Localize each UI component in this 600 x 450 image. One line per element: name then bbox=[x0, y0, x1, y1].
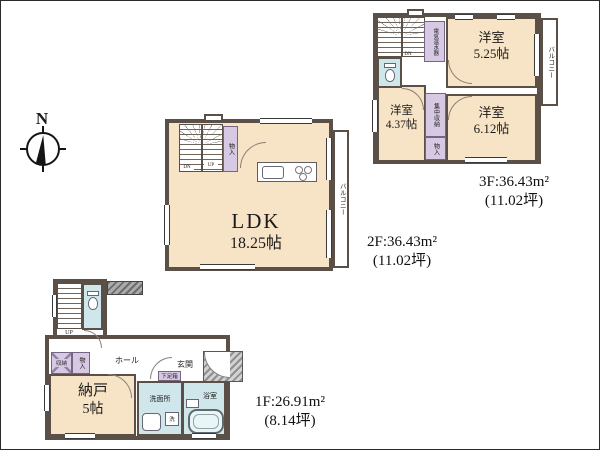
toilet-bowl-icon bbox=[88, 297, 98, 310]
compass-tick-w bbox=[20, 148, 28, 150]
floor2-stairs-divider bbox=[201, 125, 203, 171]
floor2-area-label: 2F:36.43m² (11.02坪) bbox=[346, 233, 458, 271]
window bbox=[192, 433, 216, 439]
floor3-water-heater: 電気温水器 bbox=[424, 21, 445, 62]
washer-space: 洗 bbox=[165, 412, 179, 426]
compass-tick-e bbox=[58, 148, 66, 150]
floor2-stairs-dn-label: DN bbox=[180, 165, 194, 171]
floor2-ldk-label: LDK 18.25帖 bbox=[196, 208, 316, 254]
floor3-closet: 物入 bbox=[425, 137, 446, 160]
floor3-mid-closet: 集中収納 bbox=[425, 93, 446, 137]
window bbox=[326, 210, 332, 258]
window bbox=[372, 100, 378, 132]
window bbox=[534, 34, 540, 76]
floor3-toilet-room bbox=[377, 57, 402, 88]
floor-plan-image: N バルコニー DN 電気温水器 集中収納 物入 洋室 5.25帖 洋室 4.3… bbox=[0, 0, 600, 450]
floor1-toilet-room bbox=[82, 283, 103, 330]
floor1-closet-b: 物入 bbox=[72, 352, 90, 374]
window bbox=[200, 264, 255, 270]
floor1-closet-a: 収納 bbox=[51, 352, 72, 374]
floor3-stairs bbox=[377, 17, 425, 57]
floor1-hall-label: ホール bbox=[110, 356, 144, 366]
bath-vanity-icon bbox=[186, 399, 199, 408]
floor1-closet-a-label: 収納 bbox=[56, 359, 67, 367]
floor2-stairs-up-label: UP bbox=[204, 163, 218, 169]
compass-tick-s bbox=[42, 164, 44, 172]
window bbox=[497, 14, 515, 20]
window bbox=[164, 205, 170, 245]
window bbox=[326, 138, 332, 180]
floor1-washroom: 洗面所 洗 bbox=[137, 381, 183, 436]
toilet-tank-icon bbox=[87, 291, 99, 296]
washbasin-icon bbox=[142, 413, 161, 431]
floor2-wall-protrusion bbox=[204, 114, 223, 122]
floor1-overhang-hatch bbox=[107, 281, 143, 295]
floor3-area-label: 3F:36.43m² (11.02坪) bbox=[458, 173, 570, 211]
floor1-area-label: 1F:26.91m² (8.14坪) bbox=[234, 393, 346, 431]
window bbox=[44, 385, 50, 411]
floor1-bathroom: 浴室 bbox=[182, 381, 226, 436]
floor3-room-525-label: 洋室 5.25帖 bbox=[446, 30, 537, 63]
compass-tick-n bbox=[42, 126, 44, 134]
toilet-bowl-icon bbox=[385, 69, 395, 82]
floor2-closet-label: 物入 bbox=[224, 127, 237, 171]
window bbox=[260, 118, 312, 124]
window bbox=[465, 157, 507, 163]
floor1-stairs bbox=[57, 283, 82, 329]
floor3-wall-protrusion bbox=[407, 9, 424, 17]
toilet-tank-icon bbox=[384, 63, 396, 68]
bathtub-icon bbox=[188, 409, 224, 434]
floor2-closet: 物入 bbox=[223, 126, 238, 172]
kitchen-counter bbox=[257, 162, 317, 182]
floor3-balcony: バルコニー bbox=[541, 18, 558, 106]
floor1-stairs-label: UP bbox=[60, 330, 78, 338]
floor3-balcony-label: バルコニー bbox=[543, 20, 556, 104]
floor1-washroom-label: 洗面所 bbox=[139, 395, 181, 404]
window bbox=[65, 433, 95, 439]
stove-burner-icon bbox=[299, 173, 307, 181]
floor3-water-heater-label: 電気温水器 bbox=[425, 22, 444, 61]
floor3-closet-label: 物入 bbox=[426, 138, 445, 159]
floor3-stairs-divider bbox=[401, 18, 403, 56]
window bbox=[52, 295, 57, 317]
floor3-stairs-label: DN bbox=[400, 52, 416, 58]
floor3-mid-closet-label: 集中収納 bbox=[426, 94, 445, 136]
window bbox=[455, 14, 473, 20]
floor1-closet-b-label: 物入 bbox=[73, 353, 89, 373]
floor1-washer-label: 洗 bbox=[169, 415, 175, 423]
floor1-entrance-label: 玄関 bbox=[170, 360, 200, 370]
